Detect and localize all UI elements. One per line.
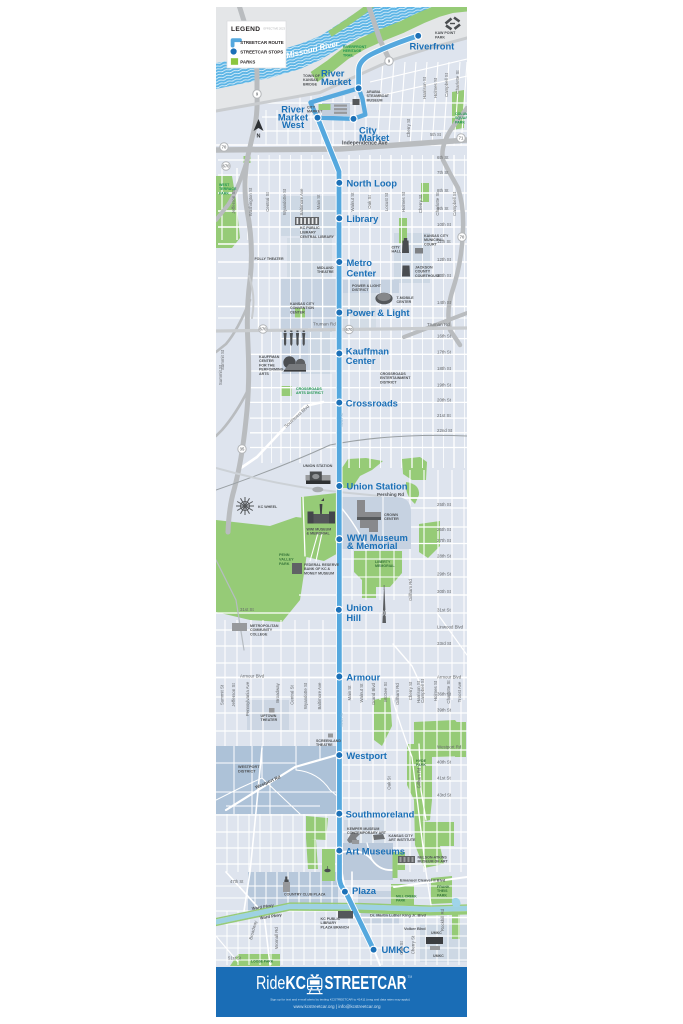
svg-text:CROWNCENTER: CROWNCENTER bbox=[384, 513, 399, 521]
svg-text:Campbell St: Campbell St bbox=[452, 191, 457, 216]
svg-text:Cherry St: Cherry St bbox=[418, 194, 423, 213]
svg-text:Linwood Blvd: Linwood Blvd bbox=[437, 625, 464, 630]
svg-text:25th St: 25th St bbox=[437, 502, 452, 507]
svg-text:Charlotte St: Charlotte St bbox=[446, 680, 451, 704]
svg-text:Main St: Main St bbox=[347, 685, 352, 701]
svg-text:6th St: 6th St bbox=[437, 155, 449, 160]
svg-text:Riverfront: Riverfront bbox=[410, 41, 455, 52]
svg-text:Holmes St: Holmes St bbox=[433, 680, 438, 701]
svg-text:40th St: 40th St bbox=[437, 760, 452, 765]
svg-text:Cherry St: Cherry St bbox=[408, 681, 413, 700]
svg-text:PARKS: PARKS bbox=[240, 59, 255, 64]
svg-text:CROSSROADSARTS DISTRICT: CROSSROADSARTS DISTRICT bbox=[296, 387, 324, 395]
svg-text:Jefferson St: Jefferson St bbox=[231, 683, 236, 707]
svg-text:N: N bbox=[257, 134, 261, 140]
svg-text:Westport Rd: Westport Rd bbox=[437, 745, 462, 750]
svg-text:22nd St: 22nd St bbox=[437, 428, 453, 433]
svg-text:Gillham Rd: Gillham Rd bbox=[408, 579, 413, 601]
svg-text:Baltimore Ave: Baltimore Ave bbox=[317, 682, 322, 710]
svg-text:Rockhill Rd: Rockhill Rd bbox=[440, 908, 445, 931]
svg-text:Holmes St: Holmes St bbox=[401, 191, 406, 212]
svg-text:Main St: Main St bbox=[339, 412, 344, 426]
svg-text:5th St: 5th St bbox=[430, 132, 442, 137]
svg-text:Gillham Rd: Gillham Rd bbox=[417, 767, 422, 788]
svg-text:UNION STATION: UNION STATION bbox=[303, 464, 333, 468]
svg-text:29th St: 29th St bbox=[437, 571, 452, 576]
svg-text:Campbell St: Campbell St bbox=[444, 72, 449, 97]
svg-text:Walnut St: Walnut St bbox=[359, 683, 364, 703]
svg-text:71: 71 bbox=[459, 136, 464, 141]
svg-text:Grand Blvd: Grand Blvd bbox=[371, 682, 376, 705]
svg-text:Summit St: Summit St bbox=[220, 684, 225, 705]
svg-text:UPTOWNTHEATER: UPTOWNTHEATER bbox=[261, 714, 278, 722]
svg-text:19th St: 19th St bbox=[437, 383, 452, 388]
svg-text:Locust St: Locust St bbox=[384, 192, 389, 211]
svg-text:16th St: 16th St bbox=[437, 334, 452, 339]
svg-text:LOOSE PARK: LOOSE PARK bbox=[251, 960, 274, 964]
svg-text:Troost Ave: Troost Ave bbox=[457, 681, 462, 702]
svg-text:Walnut St: Walnut St bbox=[350, 192, 355, 212]
svg-text:670: 670 bbox=[346, 327, 354, 332]
svg-text:North Loop: North Loop bbox=[347, 177, 398, 188]
svg-text:Oak St: Oak St bbox=[367, 195, 372, 209]
svg-text:Holmes St: Holmes St bbox=[433, 77, 438, 98]
svg-text:McGee St: McGee St bbox=[383, 681, 388, 701]
svg-text:20th St: 20th St bbox=[437, 397, 452, 402]
svg-text:KANSAS CITYART INSTITUTE: KANSAS CITYART INSTITUTE bbox=[389, 834, 417, 842]
svg-text:UMKC: UMKC bbox=[382, 944, 410, 955]
svg-text:RiverMarketWest: RiverMarketWest bbox=[278, 104, 308, 131]
svg-text:Volker Blvd: Volker Blvd bbox=[404, 926, 426, 931]
svg-text:51st St: 51st St bbox=[228, 956, 242, 961]
svg-text:Cherry St: Cherry St bbox=[411, 935, 416, 954]
svg-text:Central St: Central St bbox=[290, 684, 295, 704]
svg-text:7th St: 7th St bbox=[437, 170, 449, 175]
svg-text:Washington St: Washington St bbox=[248, 187, 253, 216]
svg-text:TM: TM bbox=[408, 975, 413, 979]
svg-text:Truman Rd: Truman Rd bbox=[313, 322, 336, 327]
svg-text:70: 70 bbox=[460, 235, 465, 240]
svg-text:STREETCAR ROUTE: STREETCAR ROUTE bbox=[240, 40, 283, 45]
svg-text:RideKC: RideKC bbox=[256, 972, 306, 993]
svg-text:Main St: Main St bbox=[316, 194, 321, 210]
svg-text:13th St: 13th St bbox=[437, 273, 452, 278]
svg-text:Westport: Westport bbox=[346, 750, 386, 761]
svg-text:STREETCAR: STREETCAR bbox=[325, 972, 407, 993]
svg-text:8th St: 8th St bbox=[437, 188, 449, 193]
svg-text:35: 35 bbox=[240, 447, 245, 452]
svg-text:Union Station: Union Station bbox=[347, 481, 408, 492]
svg-text:Library: Library bbox=[347, 213, 380, 224]
svg-text:Cherry St: Cherry St bbox=[406, 118, 411, 137]
svg-text:21st St: 21st St bbox=[437, 413, 451, 418]
svg-text:Armour: Armour bbox=[346, 672, 380, 683]
svg-text:NELSON-ATKINSMUSEUM OF ART: NELSON-ATKINSMUSEUM OF ART bbox=[418, 856, 449, 864]
svg-text:Harrison St: Harrison St bbox=[422, 76, 427, 99]
svg-text:Pershing Rd: Pershing Rd bbox=[377, 492, 404, 497]
svg-text:43rd St: 43rd St bbox=[437, 793, 452, 798]
svg-text:HYDEPARK: HYDEPARK bbox=[416, 759, 427, 767]
svg-text:COUNTRY CLUB PLAZA: COUNTRY CLUB PLAZA bbox=[284, 892, 326, 896]
svg-text:WWI MUSEUM& MEMORIAL: WWI MUSEUM& MEMORIAL bbox=[307, 528, 332, 536]
svg-text:670: 670 bbox=[223, 164, 231, 169]
svg-text:UMKC: UMKC bbox=[433, 954, 444, 958]
svg-text:670: 670 bbox=[260, 327, 268, 332]
svg-text:STREETCAR STOPS: STREETCAR STOPS bbox=[240, 50, 283, 55]
svg-text:Gillham Rd: Gillham Rd bbox=[395, 683, 400, 705]
svg-text:Dr. Martin Luther King Jr. Blv: Dr. Martin Luther King Jr. Blvd bbox=[370, 913, 427, 918]
svg-text:Emanuel Cleaver II Blvd: Emanuel Cleaver II Blvd bbox=[400, 878, 446, 883]
svg-text:Oak St: Oak St bbox=[387, 776, 392, 790]
svg-text:Oak St: Oak St bbox=[399, 941, 404, 955]
svg-text:26th St: 26th St bbox=[437, 527, 452, 532]
svg-text:Wyandotte St: Wyandotte St bbox=[282, 188, 287, 215]
svg-text:Harrison St: Harrison St bbox=[416, 680, 421, 703]
svg-text:41st St: 41st St bbox=[437, 776, 451, 781]
svg-text:LEGEND: LEGEND bbox=[231, 26, 260, 33]
svg-text:31st St: 31st St bbox=[240, 607, 254, 612]
svg-text:17th St: 17th St bbox=[437, 349, 452, 354]
svg-text:Central St: Central St bbox=[265, 191, 270, 211]
svg-text:Wornall Rd: Wornall Rd bbox=[274, 927, 279, 949]
svg-text:Sign up for text and e-mail al: Sign up for text and e-mail alerts by te… bbox=[270, 998, 410, 1002]
svg-text:Charlotte St: Charlotte St bbox=[455, 70, 460, 94]
svg-text:Main St: Main St bbox=[339, 712, 344, 726]
svg-text:Independence Ave: Independence Ave bbox=[342, 141, 388, 147]
svg-text:Summit St: Summit St bbox=[220, 349, 225, 370]
svg-text:Charlotte St: Charlotte St bbox=[435, 192, 440, 216]
svg-text:39th St: 39th St bbox=[437, 708, 452, 713]
svg-text:EFFECTIVE 2023: EFFECTIVE 2023 bbox=[264, 26, 286, 30]
svg-text:Southmoreland: Southmoreland bbox=[346, 808, 415, 819]
svg-text:Plaza: Plaza bbox=[352, 885, 377, 896]
svg-text:MIDLANDTHEATRE: MIDLANDTHEATRE bbox=[317, 266, 334, 274]
svg-text:www.kcstreetcar.org | info@kcs: www.kcstreetcar.org | info@kcstreetcar.o… bbox=[293, 1004, 380, 1009]
svg-text:Art Museums: Art Museums bbox=[346, 846, 405, 857]
svg-text:Armour Blvd: Armour Blvd bbox=[240, 674, 265, 679]
svg-text:Baltimore Ave: Baltimore Ave bbox=[299, 188, 304, 216]
svg-text:Broadway: Broadway bbox=[275, 682, 280, 702]
svg-text:11th St: 11th St bbox=[437, 239, 451, 244]
svg-text:10th St: 10th St bbox=[437, 222, 452, 227]
svg-text:31st St: 31st St bbox=[437, 608, 451, 613]
svg-text:12th St: 12th St bbox=[437, 257, 452, 262]
svg-text:Crossroads: Crossroads bbox=[346, 398, 398, 409]
svg-text:70: 70 bbox=[222, 145, 227, 150]
svg-text:27th St: 27th St bbox=[437, 538, 452, 543]
svg-text:Jefferson St: Jefferson St bbox=[231, 190, 236, 214]
svg-text:30th St: 30th St bbox=[437, 589, 452, 594]
svg-text:Armour Blvd: Armour Blvd bbox=[437, 675, 462, 680]
svg-text:Truman Rd: Truman Rd bbox=[427, 322, 450, 327]
svg-text:14th St: 14th St bbox=[437, 300, 452, 305]
svg-text:18th St: 18th St bbox=[437, 366, 452, 371]
svg-text:28th St: 28th St bbox=[437, 554, 452, 559]
svg-text:FOLLY THEATER: FOLLY THEATER bbox=[254, 257, 283, 261]
svg-text:Pennsylvania Ave: Pennsylvania Ave bbox=[245, 681, 250, 716]
svg-text:47th St: 47th St bbox=[230, 879, 244, 884]
svg-text:33rd St: 33rd St bbox=[437, 641, 452, 646]
svg-text:Power & Light: Power & Light bbox=[347, 307, 410, 318]
svg-text:KC WHEEL: KC WHEEL bbox=[258, 505, 278, 509]
svg-text:Wyandotte St: Wyandotte St bbox=[303, 682, 308, 709]
